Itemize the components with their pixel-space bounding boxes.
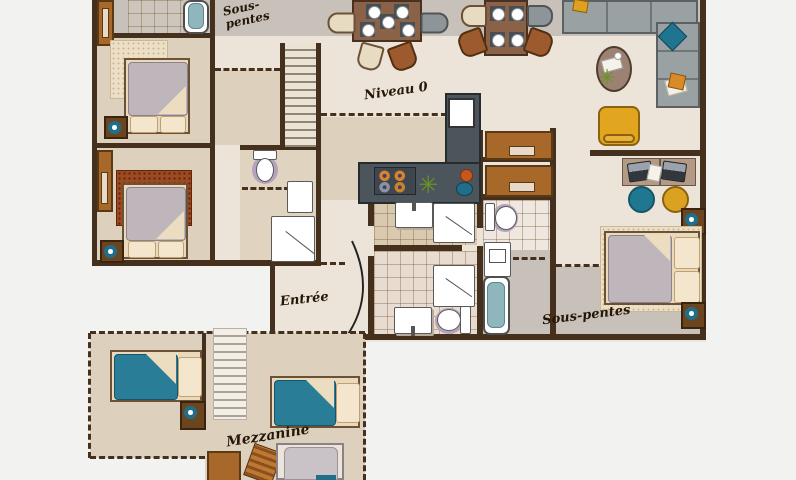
toilet-tank (485, 203, 495, 231)
sideboard (485, 131, 553, 160)
floor-plan: Entrée ✳ (0, 0, 796, 480)
sink (395, 202, 433, 228)
bedroom3-bed (604, 231, 700, 305)
mezzanine-bed-1 (110, 350, 202, 402)
chair (328, 13, 356, 34)
hall-slope-floor (215, 70, 280, 145)
mezzanine-dashed-border (88, 333, 91, 458)
toilet-bowl (437, 309, 461, 331)
toilet-tank (460, 306, 471, 334)
bedroom2-bed (122, 183, 188, 259)
plant-icon: ✳ (418, 173, 438, 197)
wardrobe (97, 150, 113, 212)
chair (527, 5, 553, 27)
stove (374, 167, 416, 195)
mezzanine-bed-2 (270, 376, 360, 428)
mezzanine-staircase (213, 328, 247, 420)
sideboard (485, 165, 553, 197)
slope-dashed-line (242, 187, 290, 190)
dining-table (484, 0, 528, 56)
bathtub-water (487, 282, 505, 328)
kettle (460, 169, 473, 182)
sink-cabinet (484, 242, 511, 277)
pillow-orange (668, 73, 687, 91)
dining-table (352, 0, 422, 42)
chair (461, 5, 487, 27)
decor-dot (614, 52, 622, 60)
mezzanine-dashed-border (90, 456, 205, 459)
wall (590, 150, 700, 156)
wall (210, 0, 215, 260)
bathtub-water (188, 3, 204, 29)
speaker (104, 116, 128, 139)
slope-dashed-line (215, 68, 280, 71)
bedroom1-bed (124, 58, 190, 134)
bathroom-topleft-tiles (128, 0, 183, 34)
plant-icon: ✳ (598, 68, 616, 90)
stool-teal (628, 186, 655, 213)
wall (270, 266, 275, 334)
pot (456, 182, 473, 196)
wardrobe (207, 451, 241, 480)
shower (433, 203, 475, 243)
mezzanine-bed-3 (276, 443, 344, 480)
staircase (285, 43, 316, 147)
toilet-bowl (256, 158, 274, 182)
bathroom-cabinet (287, 181, 313, 213)
nightstand-speaker (681, 302, 706, 329)
wall (92, 143, 215, 148)
nightstand-speaker (180, 401, 206, 430)
fridge (448, 98, 475, 128)
laptop (661, 160, 687, 182)
speaker (100, 240, 124, 263)
toilet-bowl (495, 206, 517, 230)
mezzanine-dashed-border (363, 333, 366, 480)
chair (421, 13, 449, 34)
shower (433, 265, 475, 307)
slope-dashed-line (321, 113, 447, 116)
pillow-yellow (572, 0, 589, 13)
armchair (598, 106, 640, 146)
wall (316, 43, 321, 260)
